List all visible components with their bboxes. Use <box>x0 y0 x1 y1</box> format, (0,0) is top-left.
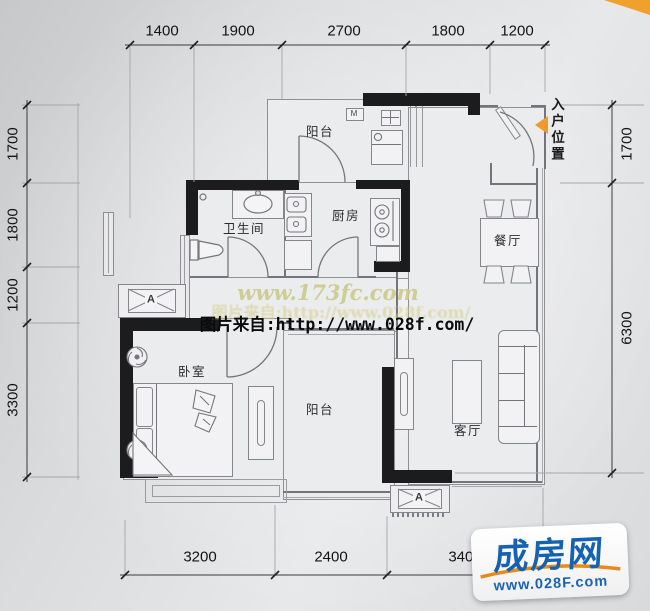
wall <box>363 93 480 106</box>
bathroom-counter <box>232 190 284 219</box>
pillow <box>136 428 153 468</box>
dim-left: 1800 <box>6 208 21 241</box>
label-living: 客厅 <box>454 425 482 438</box>
floor-plan: A A M 阳台 卫生间 厨房 餐厅 卧室 阳台 客厅 入户位置 1400 19… <box>0 0 650 611</box>
room-balcony-bottom <box>283 330 395 500</box>
wall <box>401 180 410 272</box>
dim-top: 1400 <box>145 24 178 39</box>
dim-right: 6300 <box>620 311 635 344</box>
wall <box>358 276 376 278</box>
page-corner-accent <box>604 0 650 15</box>
kitchen-appliance <box>376 246 400 262</box>
window <box>103 212 114 276</box>
label-bedroom: 卧室 <box>178 366 206 379</box>
dim-top: 1200 <box>500 24 533 39</box>
dim-bottom: 2400 <box>314 550 347 565</box>
coffee-table <box>452 360 482 424</box>
kitchen-cabinet <box>284 240 312 270</box>
label-bathroom: 卫生间 <box>223 223 265 236</box>
watermark-source: 图片来自:http://www.028f.com/ <box>191 311 483 335</box>
wall <box>187 276 228 278</box>
wall <box>452 486 542 487</box>
ledge-outline <box>152 485 280 497</box>
wall <box>186 180 198 235</box>
wall <box>285 276 318 278</box>
wall <box>283 497 390 498</box>
kitchen-sink <box>284 193 312 237</box>
wall <box>120 325 133 478</box>
label-balcony-bottom: 阳台 <box>306 404 334 417</box>
wall <box>374 261 410 272</box>
label-dining: 餐厅 <box>494 235 522 248</box>
washer-label: M <box>351 110 358 118</box>
dim-left: 3300 <box>6 383 21 416</box>
sofa <box>498 330 540 444</box>
label-balcony-top: 阳台 <box>306 126 334 139</box>
wall <box>187 180 299 190</box>
label-entry-position: 入户位置 <box>546 97 566 163</box>
wall <box>268 276 285 278</box>
ac-unit-label: A <box>413 493 425 504</box>
stove <box>370 198 400 246</box>
pillow <box>136 387 153 427</box>
dim-top: 2700 <box>327 24 360 39</box>
dim-top: 1900 <box>221 24 254 39</box>
wall <box>542 168 543 483</box>
ac-unit-label: A <box>145 295 157 306</box>
dim-left: 1700 <box>6 127 21 160</box>
ac-vent-dots <box>392 513 446 517</box>
washing-machine <box>371 130 403 165</box>
dim-left: 1200 <box>6 278 21 311</box>
dim-top: 1800 <box>431 24 464 39</box>
wall <box>382 470 452 483</box>
label-kitchen: 厨房 <box>332 210 360 223</box>
dim-bottom: 3200 <box>183 550 216 565</box>
wardrobe <box>248 386 274 460</box>
wall <box>480 105 498 107</box>
dim-right: 1700 <box>620 127 635 160</box>
tv-cabinet <box>394 358 414 430</box>
wall <box>490 163 492 185</box>
duct-shaft <box>410 105 426 167</box>
wall <box>382 367 394 472</box>
wall <box>468 93 480 115</box>
appliance-box <box>381 110 401 126</box>
wall <box>452 481 542 483</box>
site-logo: 成房网 www.028F.com <box>471 523 630 602</box>
wall <box>490 183 538 185</box>
wall <box>283 491 390 493</box>
